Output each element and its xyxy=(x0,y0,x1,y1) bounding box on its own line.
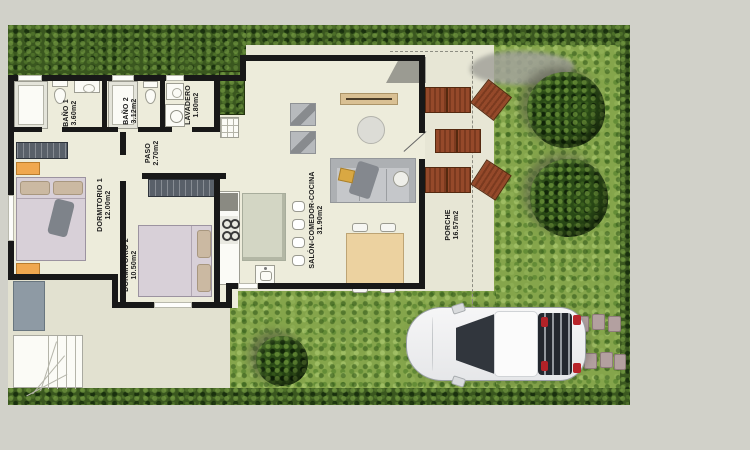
sun-lounger-double xyxy=(435,129,481,153)
window xyxy=(18,75,42,81)
room-label-bano1: BAÑO 13.60m2 xyxy=(63,58,81,168)
stepping-stone xyxy=(614,354,626,370)
wall xyxy=(102,75,107,132)
wall xyxy=(226,283,232,308)
tree-large xyxy=(530,159,608,237)
car-taillight xyxy=(573,363,581,373)
nightstand-dorm1-top xyxy=(16,162,40,175)
shower-tray-bano1 xyxy=(14,81,48,129)
sun-lounger-double xyxy=(425,87,471,113)
window xyxy=(166,75,184,81)
wardrobe-dorm1 xyxy=(16,142,68,159)
stair-landing xyxy=(13,281,45,331)
room-label-salon: SALÓN-COMEDOR-COCINA31.90m2 xyxy=(309,165,327,275)
sideboard xyxy=(340,93,398,105)
bar-stool xyxy=(292,255,305,266)
wall xyxy=(14,127,42,132)
wall xyxy=(8,75,14,280)
staircase xyxy=(13,335,83,388)
room-label-bano2: BAÑO 23.12m2 xyxy=(123,56,141,166)
tree-large xyxy=(527,72,605,148)
wall xyxy=(214,173,220,302)
site-plan: BAÑO 13.60m2 BAÑO 23.12m2 LAVADERO1.80m2… xyxy=(8,25,630,405)
washing-machine xyxy=(165,104,185,127)
car-roof xyxy=(494,311,538,377)
armchair xyxy=(290,131,316,154)
entry-doormat-grid xyxy=(220,117,239,138)
bar-stool xyxy=(292,201,305,212)
hedge-top-right xyxy=(246,25,630,45)
hedge-bottom xyxy=(8,388,630,405)
kitchen-cooktop xyxy=(220,216,238,244)
wall xyxy=(240,55,425,61)
room-label-porche: PORCHE16.57m2 xyxy=(445,170,463,280)
bed-dorm1 xyxy=(16,177,86,261)
car-engine-cover xyxy=(538,313,572,375)
car xyxy=(404,305,590,383)
kitchen-island xyxy=(242,193,286,261)
tree-small xyxy=(256,336,308,386)
wall xyxy=(214,75,220,132)
wall xyxy=(8,274,118,280)
bar-stool xyxy=(292,237,305,248)
hedge-right-edge xyxy=(620,41,630,389)
stepping-stone xyxy=(608,316,621,332)
blanket-dorm1 xyxy=(47,198,75,238)
stepping-stone xyxy=(600,352,613,368)
sofa-pillow xyxy=(338,168,355,184)
side-table xyxy=(393,171,409,187)
car-taillight xyxy=(573,315,581,325)
floorplan-screenshot: { "plan": { "title": "Single-storey vill… xyxy=(0,0,750,450)
dining-table xyxy=(346,233,404,285)
window xyxy=(238,283,258,289)
bar-stool xyxy=(292,219,305,230)
wall xyxy=(419,55,425,133)
kitchen-sink xyxy=(255,265,275,284)
dining-chair xyxy=(352,223,368,232)
room-label-lavadero: LAVADERO1.80m2 xyxy=(185,50,203,160)
laundry-sink xyxy=(166,83,184,100)
room-label-dormitorio2: DORMITORIO 210.50m2 xyxy=(123,210,141,320)
car-hood-seam xyxy=(432,317,433,371)
kitchen-oven xyxy=(220,193,238,211)
stepping-stone xyxy=(592,314,605,330)
room-label-dormitorio1: DORMITORIO 112.00m2 xyxy=(97,150,115,260)
bed-dorm2 xyxy=(138,225,212,297)
window xyxy=(8,195,14,241)
armchair xyxy=(290,103,316,126)
dining-chair xyxy=(380,223,396,232)
wall xyxy=(419,159,425,289)
window xyxy=(154,302,192,308)
kitchen-counter xyxy=(218,191,240,285)
room-label-paso: PASO2.70m2 xyxy=(145,98,163,208)
round-rug xyxy=(357,116,385,144)
